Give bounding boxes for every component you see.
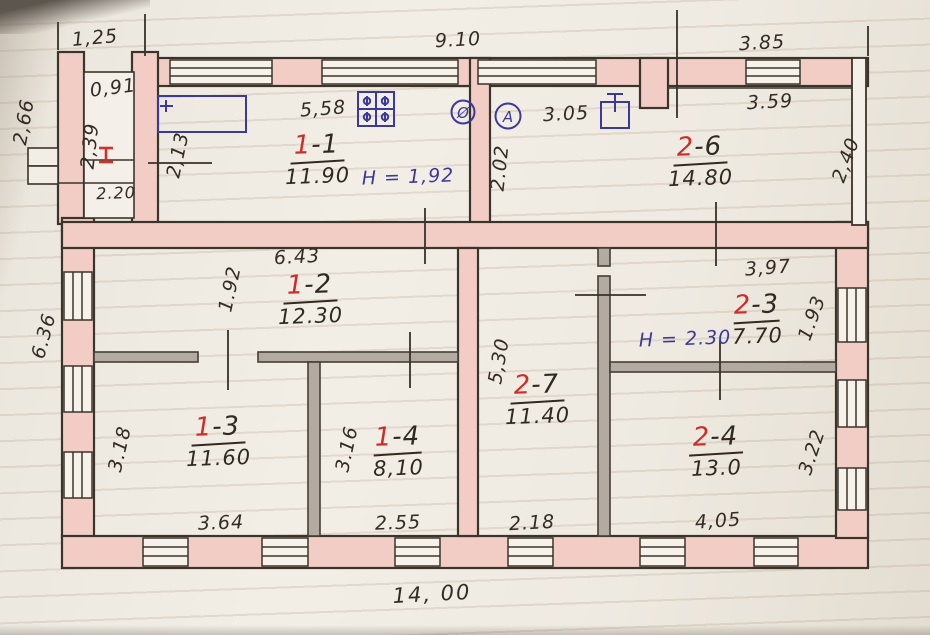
meter-a-icon: А: [496, 104, 521, 129]
dim-room-1-4-bottom: 2.55: [374, 511, 421, 535]
dim-wash-top: 3.05: [542, 102, 589, 126]
room-label-2-7: 2-7 11.40: [503, 371, 570, 429]
room-label-1-4: 1-4 8,10: [372, 423, 425, 481]
room-number: 2-4: [688, 423, 743, 451]
room-number: 1-3: [184, 413, 250, 441]
dim-top-main: 9.10: [434, 28, 481, 52]
room-number: 2-7: [503, 371, 569, 399]
room-area: 8,10: [373, 456, 425, 481]
room-area: 11.60: [186, 446, 252, 471]
dim-room-2-4-bottom: 4,05: [694, 508, 742, 533]
dim-room-2-6-top: 3.59: [746, 90, 793, 114]
gas-stove-icon: [358, 92, 394, 126]
room-label-2-4: 2-4 13.0: [688, 423, 744, 481]
counter-icon: [158, 96, 246, 132]
room-number: 1-1: [283, 131, 349, 159]
floor-plan-photo: Ø А 1,25 9.10 3.85 2,66 0,91 2,39 2.20 2…: [0, 0, 930, 635]
room-area: 11.90: [285, 164, 351, 189]
room-label-1-3: 1-3 11.60: [184, 413, 251, 471]
height-note-room-2-3: H = 2.30: [638, 326, 731, 351]
room-area: 14.80: [668, 166, 734, 191]
room-label-1-2: 1-2 12.30: [276, 271, 343, 329]
room-number: 1-4: [372, 423, 424, 451]
room-area: 13.0: [689, 456, 744, 481]
dim-top-right: 3.85: [738, 31, 785, 55]
room-number: 1-2: [276, 271, 342, 299]
dim-total-bottom: 14, 00: [392, 580, 472, 608]
dim-room-2-3-top: 3,97: [744, 255, 792, 280]
room-number: 2-6: [666, 133, 732, 161]
room-label-1-1: 1-1 11.90: [283, 131, 350, 189]
room-area: 12.30: [278, 304, 344, 329]
dim-porch-top: 1,25: [71, 25, 119, 51]
dim-room-2-7-bottom: 2.18: [508, 511, 555, 535]
flue-letter: Ø: [456, 104, 470, 122]
height-note-room-1-1: H = 1,92: [361, 164, 454, 189]
room-label-2-6: 2-6 14.80: [666, 133, 733, 191]
room-area: 11.40: [505, 404, 571, 429]
meter-a-letter: А: [502, 108, 513, 126]
room-area: 7.70: [732, 324, 784, 349]
dim-room-1-2-top: 6.43: [273, 245, 320, 269]
dim-porch-bottom: 2.20: [96, 183, 136, 203]
room-label-2-3: 2-3 7.70: [731, 291, 784, 349]
room-number: 2-3: [731, 291, 783, 319]
dim-room-1-1-top: 5,58: [299, 96, 347, 121]
boiler-icon: [601, 94, 629, 128]
dim-room-1-3-bottom: 3.64: [197, 511, 244, 535]
